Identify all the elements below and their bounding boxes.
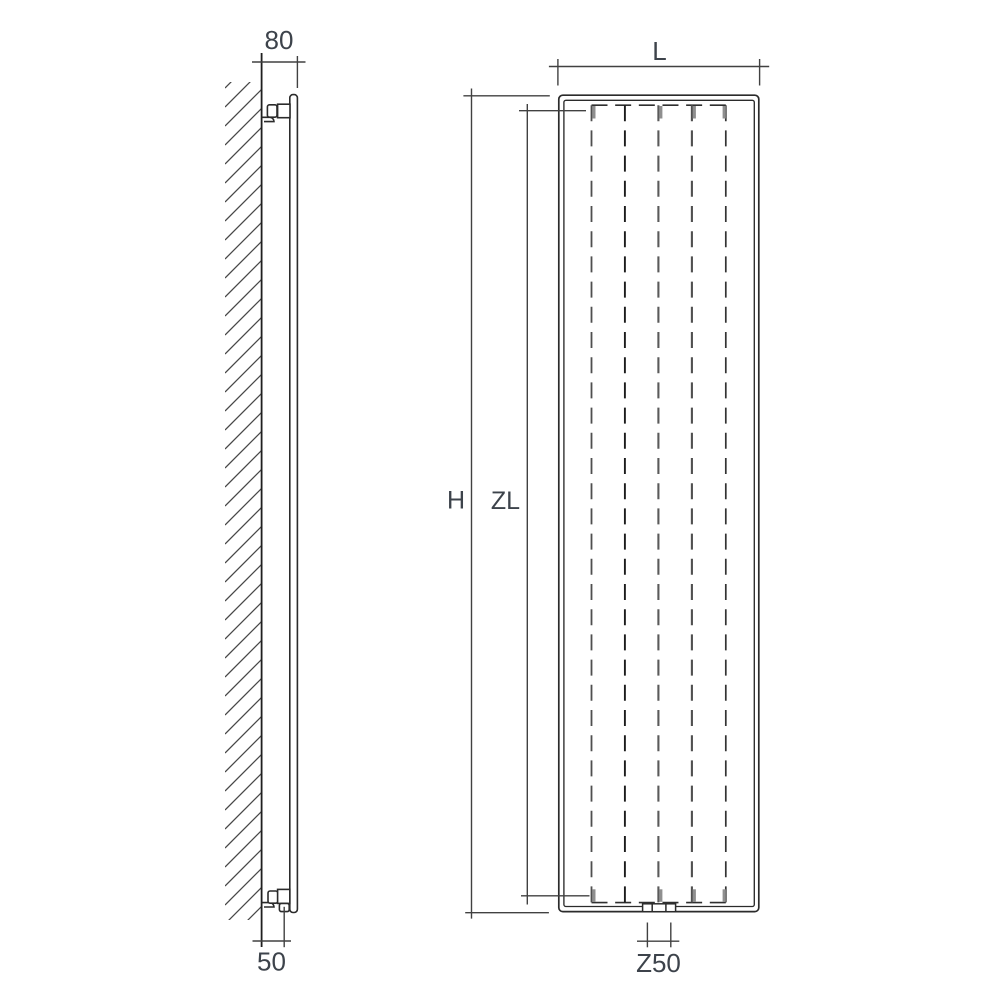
svg-text:80: 80 xyxy=(265,25,294,55)
svg-text:H: H xyxy=(447,487,465,515)
svg-text:Z50: Z50 xyxy=(636,948,681,978)
svg-text:L: L xyxy=(652,36,666,66)
svg-text:50: 50 xyxy=(257,947,286,977)
svg-text:ZL: ZL xyxy=(491,487,520,515)
